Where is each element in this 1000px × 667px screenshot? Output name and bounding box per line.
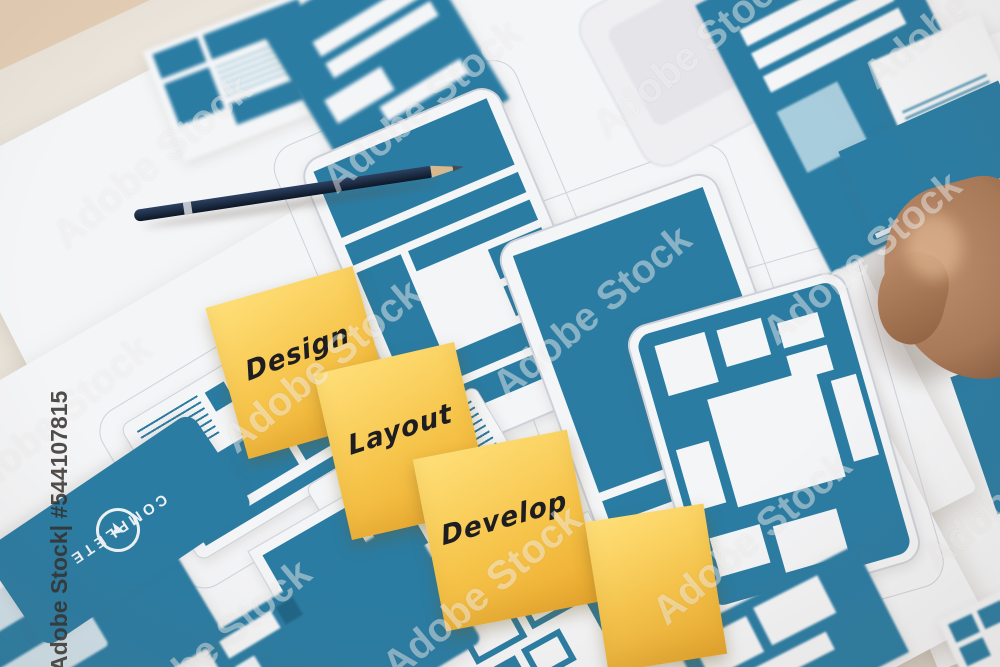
stock-photo-scene: ➤ COMPLETE Design Layout Develop Adobe S… xyxy=(0,0,1000,667)
key xyxy=(234,655,262,667)
wireframe-block xyxy=(948,614,980,643)
wireframe-block xyxy=(707,369,846,508)
complete-badge-label: COMPLETE xyxy=(65,491,170,570)
desk-corner xyxy=(0,0,150,70)
pencil-graphite-tip xyxy=(452,164,464,172)
wireframe-block xyxy=(654,332,718,396)
wireframe-cell xyxy=(521,628,577,667)
pencil-band xyxy=(183,202,193,215)
watermark-id: Adobe Stock| #544107815 xyxy=(46,352,73,667)
wireframe-block xyxy=(959,637,991,666)
wireframe-block xyxy=(977,600,1000,629)
sticky-note-develop: Develop xyxy=(413,430,601,632)
pencil-wood-tip xyxy=(430,161,463,178)
hand-knuckle-highlight xyxy=(906,214,962,280)
handwritten-label: Develop xyxy=(426,481,582,555)
wireframe-block xyxy=(276,597,303,624)
handwritten-label xyxy=(594,549,710,578)
wireframe-block xyxy=(164,67,225,125)
sticky-note-blank xyxy=(585,504,727,667)
wireframe-block xyxy=(676,441,726,512)
wireframe-block xyxy=(716,318,771,367)
wireframe-block xyxy=(777,312,825,349)
wireframe-block xyxy=(710,524,771,577)
hand xyxy=(860,160,1000,390)
